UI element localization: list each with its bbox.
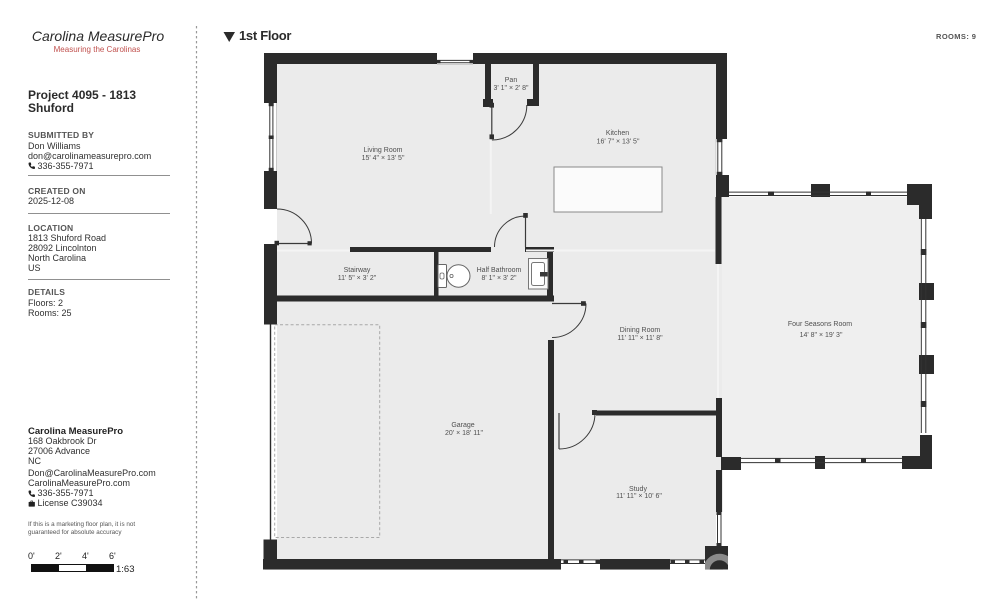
svg-text:16' 7" × 13' 5": 16' 7" × 13' 5" xyxy=(597,139,640,146)
svg-text:Pan: Pan xyxy=(505,77,518,84)
svg-text:11' 11" × 11' 8": 11' 11" × 11' 8" xyxy=(617,335,663,342)
svg-text:Living Room: Living Room xyxy=(364,147,403,154)
svg-text:Half Bathroom: Half Bathroom xyxy=(477,267,522,274)
svg-text:11' 11" × 10' 6": 11' 11" × 10' 6" xyxy=(616,493,662,500)
svg-text:Stairway: Stairway xyxy=(344,267,371,274)
svg-text:8' 1" × 3' 2": 8' 1" × 3' 2" xyxy=(481,275,517,282)
svg-text:3' 1" × 2' 8": 3' 1" × 2' 8" xyxy=(493,85,529,92)
svg-text:14' 8" × 19' 3": 14' 8" × 19' 3" xyxy=(800,332,843,339)
svg-text:Kitchen: Kitchen xyxy=(606,130,629,137)
svg-text:Dining Room: Dining Room xyxy=(620,327,661,334)
svg-text:20' × 18' 11": 20' × 18' 11" xyxy=(445,430,483,437)
svg-text:Four Seasons Room: Four Seasons Room xyxy=(788,321,852,328)
svg-text:15' 4" × 13' 5": 15' 4" × 13' 5" xyxy=(362,155,405,162)
svg-text:11' 5" × 3' 2": 11' 5" × 3' 2" xyxy=(338,275,377,282)
svg-text:Study: Study xyxy=(629,486,647,493)
svg-text:Garage: Garage xyxy=(451,422,474,429)
